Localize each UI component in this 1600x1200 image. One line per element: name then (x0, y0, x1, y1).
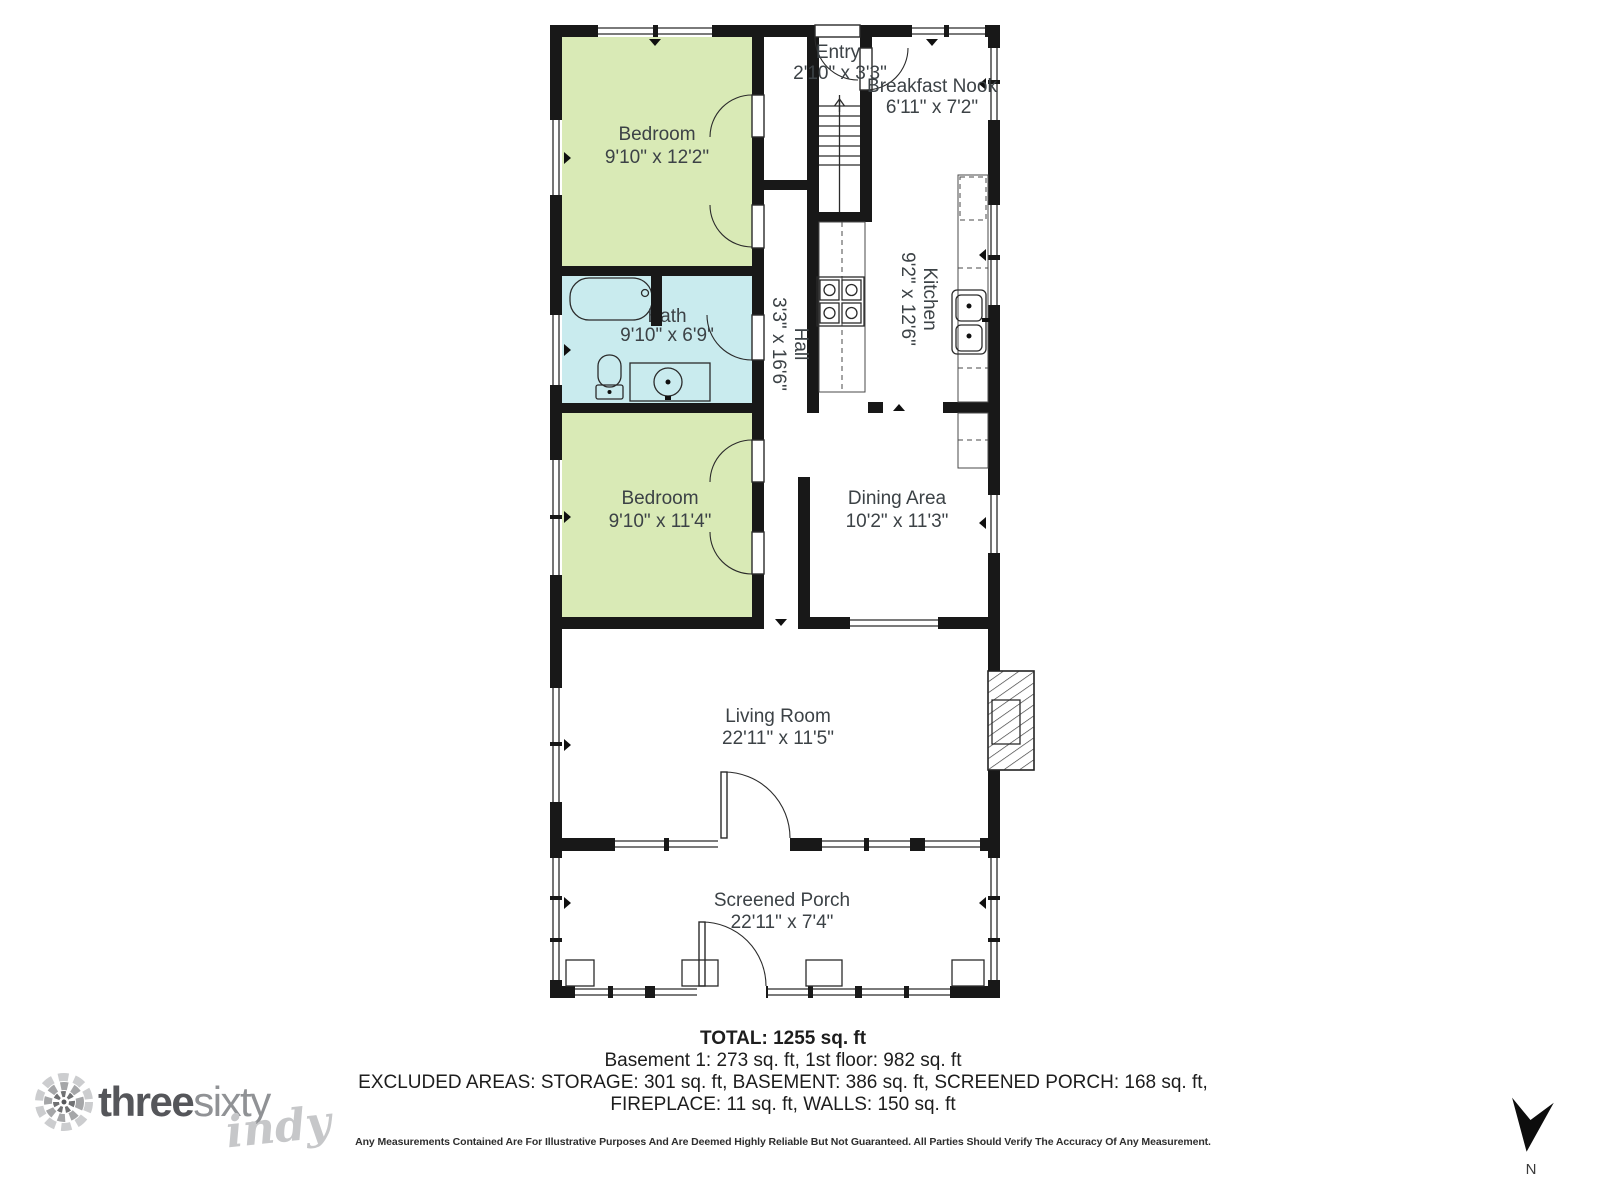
total-area: TOTAL: 1255 sq. ft (0, 1028, 1566, 1050)
window-left-porch (550, 858, 562, 980)
window-left-living (550, 688, 562, 802)
breakfast-nook-label: Breakfast Nook (867, 76, 997, 97)
compass-label: N (1502, 1161, 1560, 1178)
hall-label: Hall (790, 328, 811, 361)
window-top-bedroom1 (598, 25, 712, 37)
breakfast-nook-dims: 6'11" x 7'2" (886, 97, 978, 118)
living-dims: 22'11" x 11'5" (722, 728, 834, 749)
bath-dims: 9'10" x 6'9" (620, 325, 714, 346)
dining-dims: 10'2" x 11'3" (846, 511, 949, 532)
porch-label: Screened Porch (714, 890, 850, 911)
dining-label: Dining Area (848, 488, 947, 509)
window-right-dining (988, 495, 1000, 553)
fireplace (988, 671, 1034, 770)
window-left-bedroom1 (550, 120, 562, 195)
entry-label: Entry (816, 42, 861, 63)
bedroom2-label: Bedroom (621, 488, 698, 509)
bath-wall-stub (651, 266, 662, 326)
living-label: Living Room (725, 706, 831, 727)
floor-plan: Bedroom 9'10" x 12'2" Entry 2'10" x 3'3"… (0, 0, 1600, 1200)
threesixty-pinwheel-icon (34, 1066, 96, 1138)
bedroom1-label: Bedroom (618, 124, 695, 145)
window-left-bedroom2 (550, 460, 562, 575)
window-left-bath (550, 315, 562, 385)
bedroom2-dims: 9'10" x 11'4" (609, 511, 712, 532)
bedroom1-dims: 9'10" x 12'2" (605, 147, 709, 168)
hall-dims: 3'3" x 16'6" (768, 297, 789, 391)
compass: N (1502, 1096, 1560, 1178)
dining-living-opening (850, 617, 938, 629)
logo-script-indy: indy (224, 1097, 334, 1159)
kitchen-label: Kitchen (919, 267, 940, 330)
floorplan-page: Bedroom 9'10" x 12'2" Entry 2'10" x 3'3"… (0, 0, 1600, 1200)
porch-dims: 22'11" x 7'4" (731, 912, 834, 933)
logo-word-three: three (98, 1078, 193, 1125)
kitchen-dining-opening (883, 402, 943, 413)
porch-posts (566, 960, 984, 986)
north-arrow-icon (1502, 1096, 1560, 1154)
window-right-kitchen (988, 205, 1000, 305)
kitchen-dims: 9'2" x 12'6" (897, 252, 918, 346)
living-porch-door (718, 772, 790, 851)
staircase (819, 95, 860, 212)
threesixty-logo: threesixty indy (34, 1062, 334, 1172)
window-right-porch (988, 858, 1000, 980)
window-top-nook (912, 25, 985, 37)
